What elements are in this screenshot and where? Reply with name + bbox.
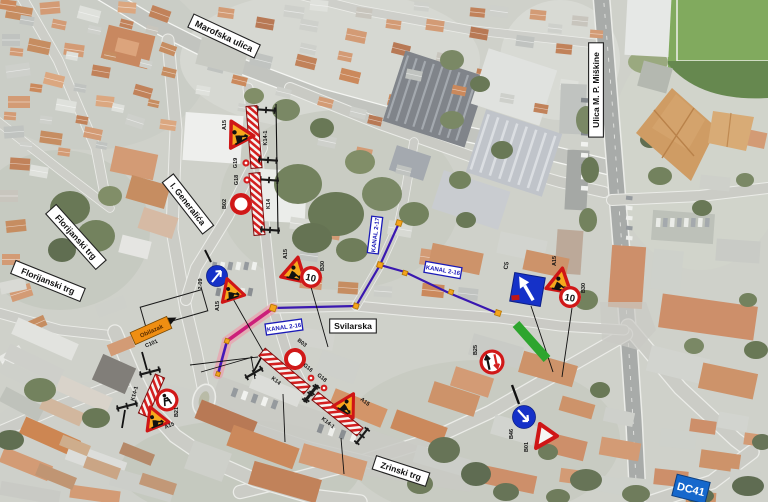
svg-text:Svilarska: Svilarska <box>334 321 372 331</box>
svg-text:10: 10 <box>564 292 576 305</box>
svg-text:A15: A15 <box>552 256 558 266</box>
svg-text:2-09: 2-09 <box>198 278 204 289</box>
svg-text:A15: A15 <box>222 120 228 130</box>
svg-text:10: 10 <box>304 272 317 285</box>
svg-text:B25: B25 <box>473 345 479 355</box>
svg-text:K14: K14 <box>266 198 272 209</box>
svg-text:K14-1: K14-1 <box>263 131 269 146</box>
svg-text:G18: G18 <box>234 175 240 185</box>
svg-text:Ulica M. P. Miškine: Ulica M. P. Miškine <box>591 52 601 128</box>
svg-text:B02: B02 <box>222 199 228 209</box>
svg-text:B21: B21 <box>174 407 180 417</box>
svg-text:B46: B46 <box>509 429 515 439</box>
svg-text:A15: A15 <box>283 249 289 259</box>
svg-text:A15: A15 <box>215 301 221 311</box>
svg-text:B30: B30 <box>320 261 326 271</box>
svg-text:B30: B30 <box>581 283 587 293</box>
svg-text:G19: G19 <box>233 158 239 168</box>
svg-text:B01: B01 <box>524 442 530 452</box>
